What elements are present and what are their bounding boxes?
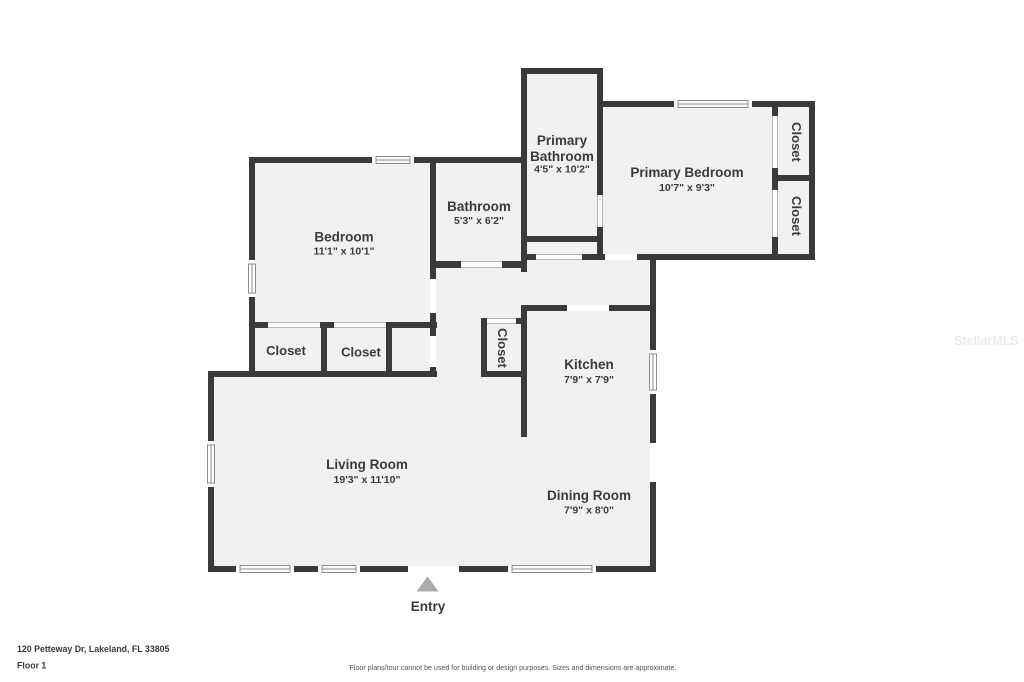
svg-text:Floor 1: Floor 1 xyxy=(17,661,46,671)
svg-text:Closet: Closet xyxy=(341,345,381,360)
svg-text:11'1" x 10'1": 11'1" x 10'1" xyxy=(313,246,374,258)
svg-text:4'5" x 10'2": 4'5" x 10'2" xyxy=(534,164,590,176)
svg-text:Bedroom: Bedroom xyxy=(314,230,373,245)
svg-text:10'7" x 9'3": 10'7" x 9'3" xyxy=(659,182,715,194)
svg-text:7'9" x 8'0": 7'9" x 8'0" xyxy=(564,505,614,517)
svg-text:Kitchen: Kitchen xyxy=(564,357,614,372)
svg-text:19'3" x 11'10": 19'3" x 11'10" xyxy=(334,474,401,486)
svg-text:Primary Bedroom: Primary Bedroom xyxy=(630,165,743,180)
svg-text:Living Room: Living Room xyxy=(326,457,408,472)
svg-text:Dining Room: Dining Room xyxy=(547,488,631,503)
svg-text:Bathroom: Bathroom xyxy=(447,199,511,214)
svg-text:StellarMLS: StellarMLS xyxy=(954,334,1019,348)
svg-text:5'3" x 6'2": 5'3" x 6'2" xyxy=(454,215,504,227)
svg-text:Closet: Closet xyxy=(495,328,510,368)
svg-text:Bathroom: Bathroom xyxy=(530,149,594,164)
svg-text:Closet: Closet xyxy=(266,343,306,358)
svg-text:Entry: Entry xyxy=(411,599,446,614)
svg-text:Primary: Primary xyxy=(537,133,588,148)
svg-text:Closet: Closet xyxy=(789,196,804,236)
svg-text:7'9" x 7'9": 7'9" x 7'9" xyxy=(564,374,614,386)
svg-text:120 Petteway Dr, Lakeland, FL: 120 Petteway Dr, Lakeland, FL 33805 xyxy=(17,644,170,654)
svg-text:Floor plans/tour cannot be use: Floor plans/tour cannot be used for buil… xyxy=(350,664,677,672)
svg-text:Closet: Closet xyxy=(789,122,804,162)
